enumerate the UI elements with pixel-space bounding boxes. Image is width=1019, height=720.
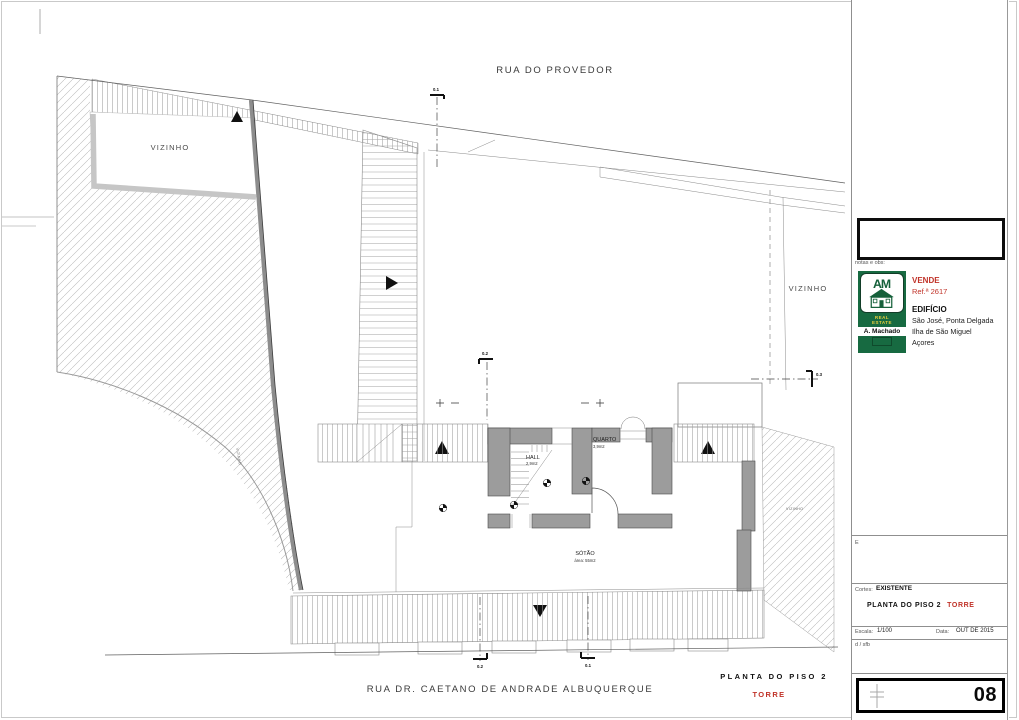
logo-real-estate: REAL ESTATE [858, 315, 906, 325]
roof-area-boundaries [424, 152, 786, 461]
sheet-number-box: 08 [856, 678, 1005, 713]
drawing-caption-title: PLANTA DO PISO 2 [720, 672, 828, 681]
notes-box [857, 218, 1005, 260]
drawing-title: PLANTA DO PISO 2 [867, 602, 941, 609]
drawing-caption-subtitle: TORRE [752, 690, 785, 699]
section-label-top: 0.1 [433, 87, 440, 92]
title-block-right-border [1007, 0, 1008, 720]
divider-2 [852, 583, 1007, 584]
property-address-2: Ilha de São Miguel [912, 327, 972, 336]
listing-action: VENDE [912, 276, 940, 285]
notes-label: notas e obs: [855, 260, 885, 266]
vizinho-right-label: VIZINHO [789, 284, 828, 293]
room-hall-area: 2,9m2 [526, 461, 538, 466]
logo-ribbon [872, 337, 892, 346]
dimension-crosses [436, 399, 604, 407]
registration-mark-icon [867, 683, 887, 709]
logo-panel: AM [860, 273, 904, 313]
initials: d / sfb [855, 642, 870, 648]
scale-value: 1/100 [877, 628, 892, 634]
roof-slope-arrows [231, 111, 715, 617]
vizinho-left-label: VIZINHO [151, 143, 190, 152]
right-neighbor-hatch [762, 427, 834, 652]
divider-1 [852, 535, 1007, 536]
section-label-bottom-left: 0.2 [477, 664, 484, 669]
listing-ref: Ref.ª 2617 [912, 287, 947, 296]
drawing-title-row: PLANTA DO PISO 2 TORRE [867, 602, 975, 609]
property-type: EDIFÍCIO [912, 305, 947, 314]
date-value: OUT DE 2015 [956, 628, 994, 634]
title-block: notas e obs: AM REAL ESTATE A. Machado V… [851, 0, 1009, 720]
scan-artifacts [2, 9, 54, 226]
street-name-bottom: RUA DR. CAETANO DE ANDRADE ALBUQUERQUE [367, 684, 654, 695]
logo-estate: ESTATE [858, 320, 906, 325]
status-label: Cortes: [855, 587, 873, 593]
logo-monogram: AM [873, 277, 891, 291]
room-sotao-area: área: 55m2 [574, 558, 596, 563]
sotao-boundaries [293, 461, 764, 593]
agency-logo: AM REAL ESTATE A. Machado [858, 271, 906, 353]
logo-house-icon: AM [861, 274, 902, 310]
date-label: Data: [936, 629, 949, 635]
vizinho-small-right-label: VIZINHO [786, 507, 803, 511]
status-value: EXISTENTE [876, 585, 912, 592]
divider-4 [852, 639, 1007, 640]
drawing-title-tower: TORRE [947, 602, 974, 609]
logo-agency-name: A. Machado [858, 327, 906, 336]
property-address-3: Açores [912, 338, 934, 347]
street-name-top: RUA DO PROVEDOR [496, 65, 613, 76]
divider-5 [852, 673, 1007, 674]
section-label-mid: 0.2 [482, 351, 489, 356]
property-address-1: São José, Ponta Delgada [912, 316, 994, 325]
section-label-bottom-right: 0.1 [585, 663, 592, 668]
floor-plan-drawing: VIZINHO VIZINHO [0, 0, 852, 720]
section-label-right: 0.3 [816, 372, 823, 377]
room-sotao-label: SÓTÃO [575, 550, 595, 557]
level-markers [439, 477, 590, 512]
scale-label: Escala: [855, 629, 873, 635]
lower-eave-band [105, 590, 838, 655]
room-quarto-label: QUARTO [593, 437, 617, 443]
west-roof-band [357, 130, 417, 461]
divider-3 [852, 626, 1007, 627]
vizinho-parcel [90, 112, 258, 197]
note-field: E [855, 540, 859, 546]
sheet-number: 08 [974, 684, 997, 707]
room-quarto-area: 3,9m2 [593, 444, 605, 449]
